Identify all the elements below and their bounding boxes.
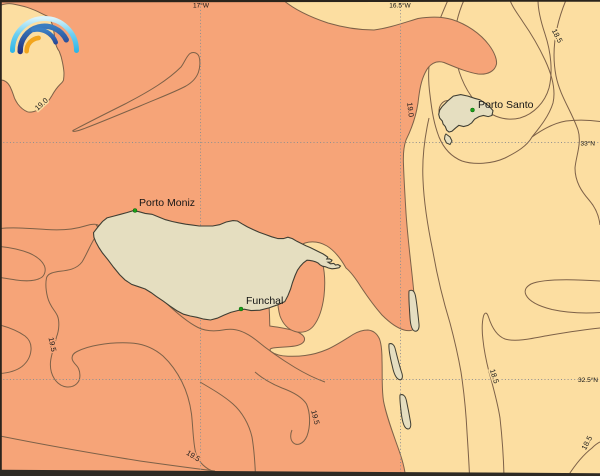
svg-text:16.5°W: 16.5°W bbox=[389, 2, 411, 10]
svg-text:17°W: 17°W bbox=[193, 2, 210, 10]
svg-text:Porto Santo: Porto Santo bbox=[478, 99, 534, 111]
svg-text:Porto Moniz: Porto Moniz bbox=[139, 197, 195, 209]
svg-text:19.0: 19.0 bbox=[405, 102, 416, 118]
svg-text:32.5°N: 32.5°N bbox=[578, 376, 598, 384]
svg-text:33°N: 33°N bbox=[580, 140, 595, 148]
svg-text:Funchal: Funchal bbox=[246, 295, 283, 307]
